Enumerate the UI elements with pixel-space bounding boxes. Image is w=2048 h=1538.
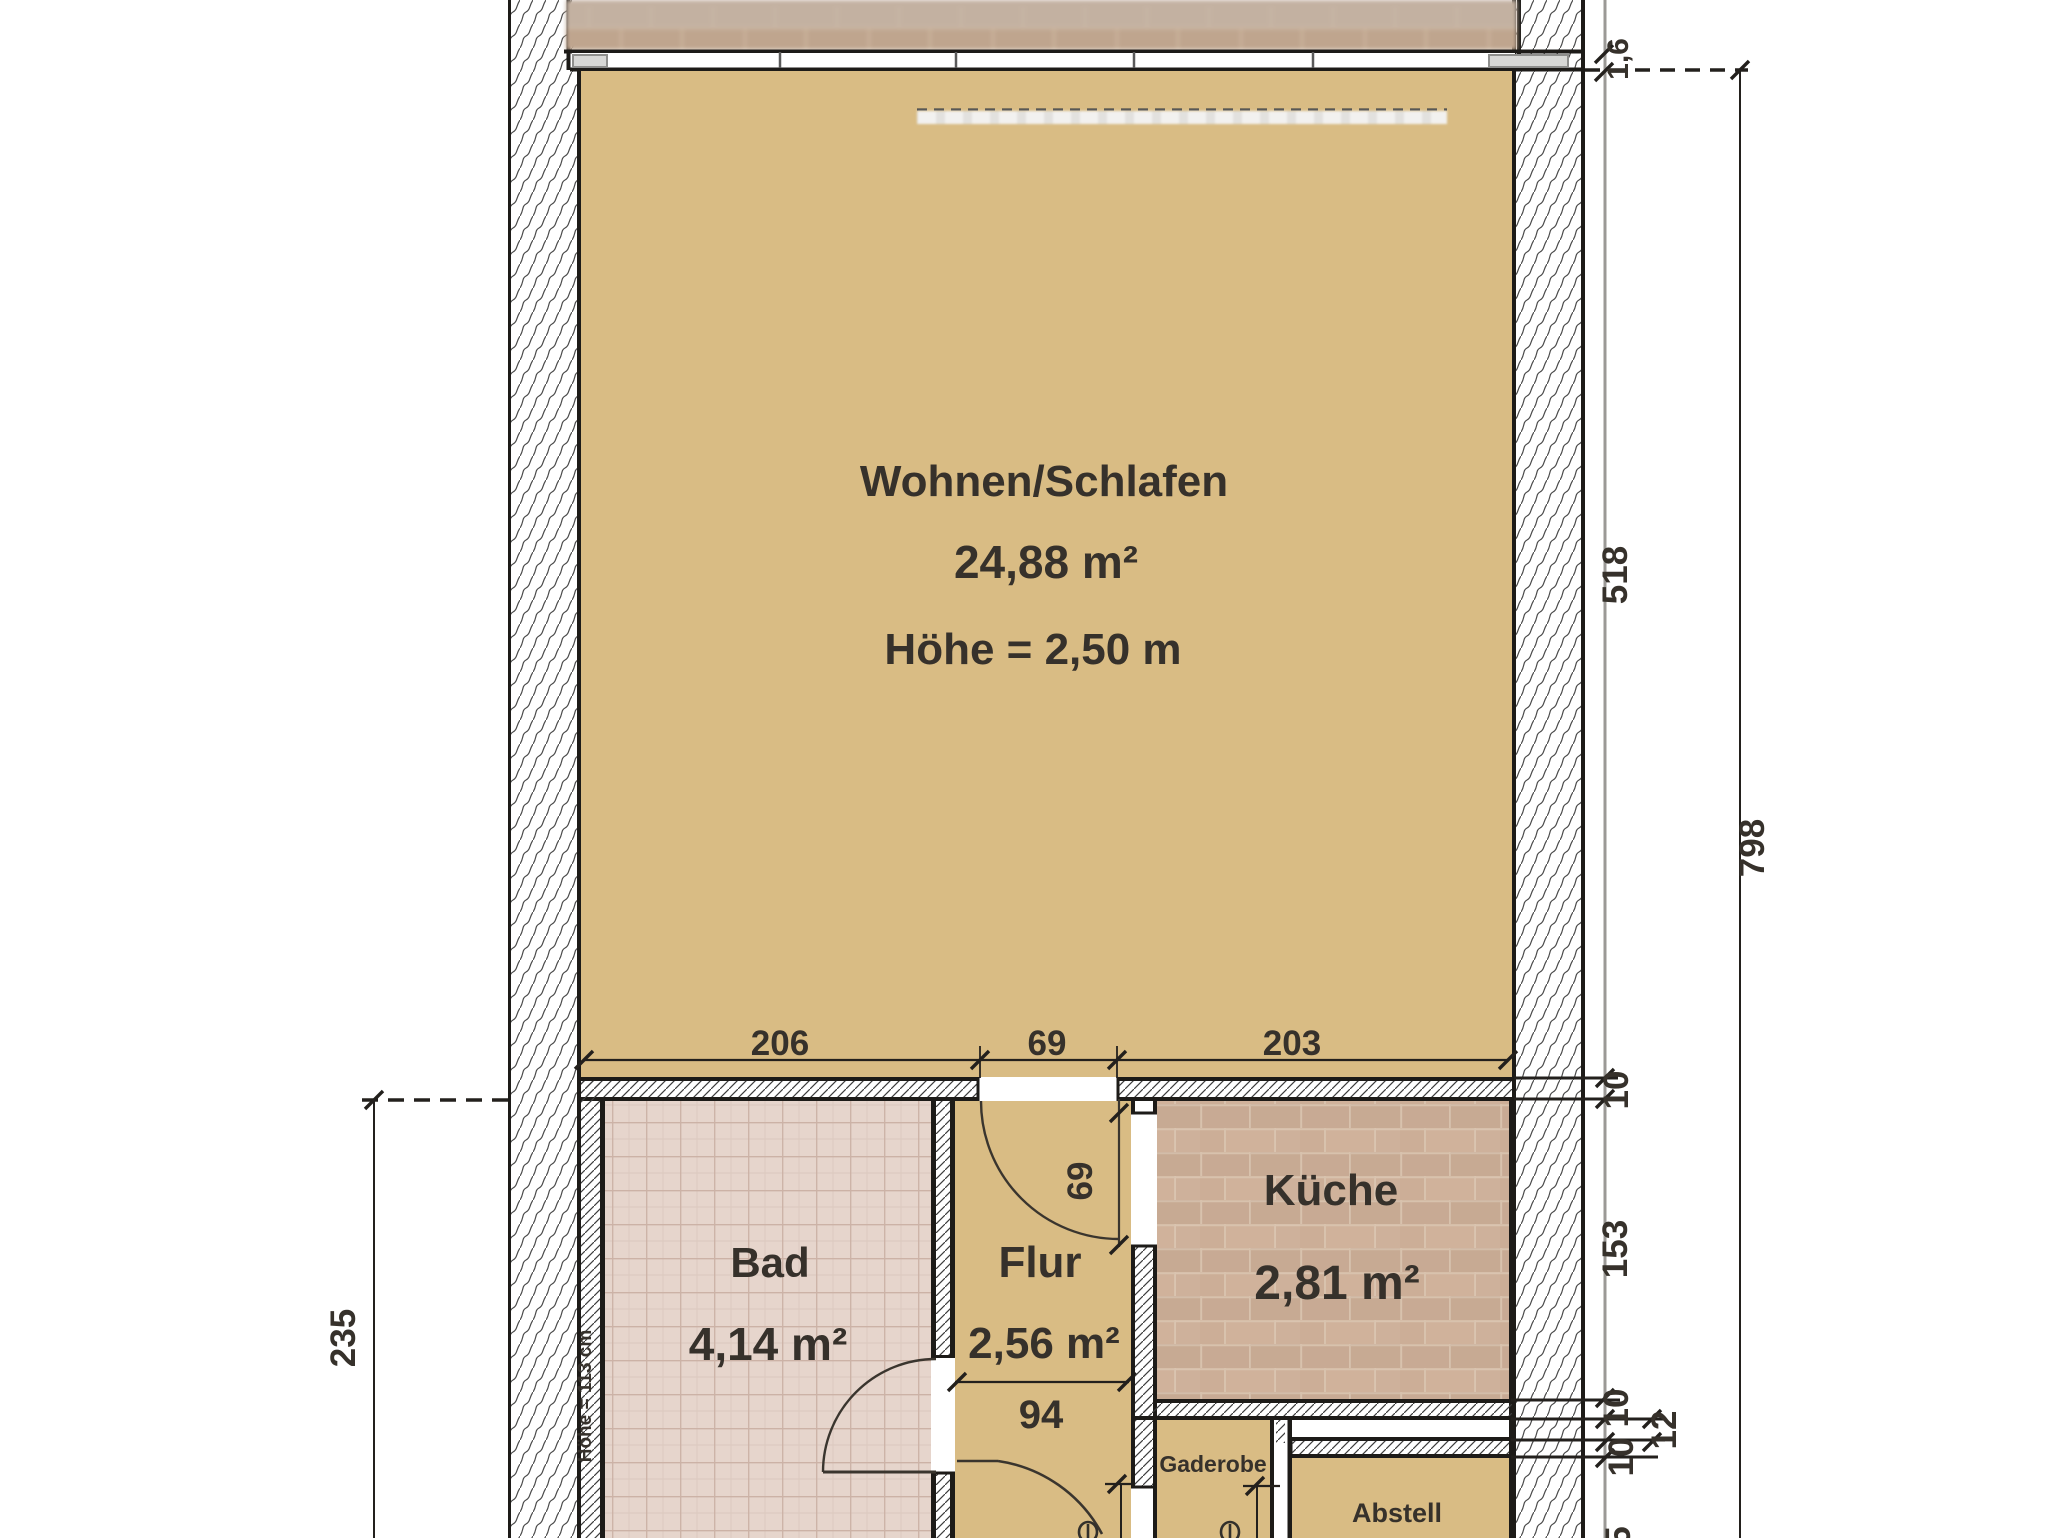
svg-text:69: 69 xyxy=(1061,1162,1100,1201)
svg-text:10: 10 xyxy=(1597,1389,1636,1428)
svg-text:10: 10 xyxy=(1602,1438,1641,1477)
svg-text:Abstell: Abstell xyxy=(1352,1498,1442,1528)
svg-text:518: 518 xyxy=(1596,546,1635,604)
svg-text:153: 153 xyxy=(1596,1220,1635,1278)
svg-text:2,81 m²: 2,81 m² xyxy=(1254,1257,1419,1310)
svg-text:2,56 m²: 2,56 m² xyxy=(968,1319,1120,1368)
svg-text:235: 235 xyxy=(324,1309,363,1367)
svg-text:Bad: Bad xyxy=(730,1239,809,1286)
svg-text:Höhe = 113 cm: Höhe = 113 cm xyxy=(575,1330,596,1463)
svg-text:24,88 m²: 24,88 m² xyxy=(954,536,1138,588)
svg-text:1,6: 1,6 xyxy=(1602,38,1635,80)
svg-text:5: 5 xyxy=(1599,1526,1638,1538)
svg-text:4,14 m²: 4,14 m² xyxy=(689,1318,848,1370)
svg-text:798: 798 xyxy=(1733,819,1772,877)
svg-text:Küche: Küche xyxy=(1264,1166,1398,1215)
svg-text:10: 10 xyxy=(1597,1071,1636,1110)
svg-text:Wohnen/Schlafen: Wohnen/Schlafen xyxy=(860,457,1228,506)
svg-text:94: 94 xyxy=(1019,1393,1064,1437)
svg-text:Gaderobe: Gaderobe xyxy=(1159,1451,1266,1477)
svg-text:Höhe = 2,50 m: Höhe = 2,50 m xyxy=(884,625,1181,674)
svg-text:12: 12 xyxy=(1645,1411,1684,1450)
svg-text:Flur: Flur xyxy=(998,1238,1081,1287)
svg-text:206: 206 xyxy=(751,1024,809,1063)
svg-text:69: 69 xyxy=(1028,1024,1067,1063)
svg-text:203: 203 xyxy=(1263,1024,1321,1063)
